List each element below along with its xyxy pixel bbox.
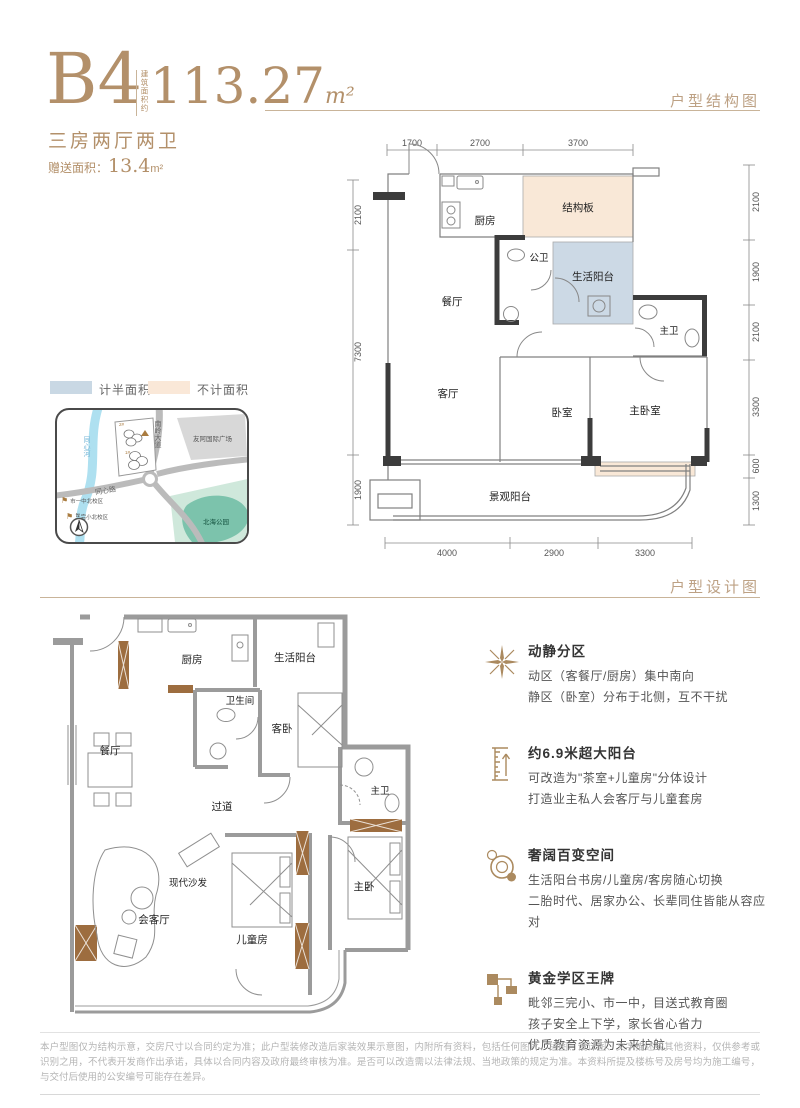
design-floorplan: 厨房 生活阳台 卫生间 客卧 餐厅 过道 主卫 现代沙发 会客厅 儿童房 主卧 <box>50 605 450 1025</box>
dim-left-0: 2100 <box>353 205 363 225</box>
dim-bottom-2: 3300 <box>635 548 655 558</box>
dim-top-1: 2700 <box>470 138 490 148</box>
dim-right-5: 1300 <box>751 491 761 511</box>
bonus-area: 赠送面积：13.4m² <box>48 155 163 177</box>
kids-door-arc <box>236 969 262 995</box>
droom-bath: 卫生间 <box>226 695 255 707</box>
public-bath-door-arc <box>531 270 551 290</box>
droom-kitchen: 厨房 <box>182 653 203 666</box>
room-label-view-balcony: 景观阳台 <box>489 490 531 503</box>
droom-master-bath: 主卫 <box>370 785 390 797</box>
floorplan-brochure-page: { "colors": {"accent":"#b3906a","beige_f… <box>0 0 800 1108</box>
map-road-nanling-label: 南岭大道 <box>152 420 162 448</box>
tv-cabinet <box>179 833 220 867</box>
room-label-kitchen: 厨房 <box>475 214 496 227</box>
map-plot-marker-2: 1# <box>125 450 130 455</box>
feature-text: 约6.9米超大阳台 可改造为"茶室+儿童房"分体设计 打造业主私人会客厅与儿童套… <box>528 742 708 810</box>
structure-plan-graphics: 1700 2700 3700 4000 2900 3300 2100 7300 … <box>345 128 765 560</box>
section-title-design: 户型设计图 <box>600 576 760 597</box>
bonus-value: 13.4 <box>108 155 150 177</box>
feature-line: 静区（卧室）分布于北侧，互不干扰 <box>528 687 728 708</box>
location-map: 同心河 南岭大道 同心路 友阿国际广场 北海公园 2# 1# ⚑市一中北校区 ⚑… <box>55 408 249 544</box>
feature-title: 约6.9米超大阳台 <box>528 742 708 762</box>
area-prefix-vertical: 建筑面积约 <box>136 70 150 116</box>
dim-bottom-1: 2900 <box>544 548 564 558</box>
feature-zoning: 动静分区 动区（客餐厅/厨房）集中南向 静区（卧室）分布于北侧，互不干扰 <box>482 640 767 708</box>
disclaimer-divider-top <box>40 1032 760 1033</box>
map-roundabout <box>144 473 157 486</box>
feature-line: 毗邻三完小、市一中，目送式教育圈 <box>528 993 728 1014</box>
master-bedroom-door-arc <box>640 357 664 381</box>
dim-left-1: 7300 <box>353 342 363 362</box>
droom-reception: 会客厅 <box>138 913 170 926</box>
bonus-label: 赠送面积： <box>48 161 108 175</box>
map-school-1-label: 市一中北校区 <box>70 499 103 505</box>
map-school-2: ⚑三完小北校区 <box>66 512 108 521</box>
feature-title: 动静分区 <box>528 640 728 660</box>
zone-life-balcony <box>553 242 633 324</box>
dim-right-1: 1900 <box>751 262 761 282</box>
room-label-life-balcony: 生活阳台 <box>572 270 614 283</box>
map-road-east <box>157 459 247 474</box>
entry-door-arc <box>409 144 439 174</box>
map-school-2-label: 三完小北校区 <box>75 515 108 521</box>
legend-label-half-area: 计半面积 <box>99 381 151 398</box>
bath-door-arc <box>236 717 258 739</box>
room-label-public-bath: 公卫 <box>529 253 549 264</box>
map-plot-marker-1: 2# <box>119 422 124 427</box>
room-label-bedroom: 卧室 <box>552 406 573 419</box>
feature-title: 奢阔百变空间 <box>528 844 767 864</box>
dim-bottom-0: 4000 <box>437 548 457 558</box>
guest-bed-door-arc <box>264 777 290 803</box>
dim-right-4: 600 <box>751 458 761 473</box>
flag-icon: ⚑ <box>66 512 73 521</box>
droom-kids-room: 儿童房 <box>236 933 268 946</box>
feature-flex-space: 奢阔百变空间 生活阳台书房/儿童房/客房随心切换 二胎时代、居家办公、长辈同住皆… <box>482 844 767 933</box>
room-label-slab: 结构板 <box>562 201 594 214</box>
bonus-unit: m² <box>150 163 163 175</box>
droom-guest-bed: 客卧 <box>272 722 293 735</box>
droom-sofa: 现代沙发 <box>169 877 208 889</box>
guest-bed <box>298 693 342 767</box>
starburst-icon <box>482 640 528 708</box>
feature-line: 二胎时代、居家办公、长辈同住皆能从容应对 <box>528 891 767 933</box>
layout-text: 三房两厅两卫 <box>48 126 180 153</box>
dim-right-0: 2100 <box>751 192 761 212</box>
master-bath-door-arc <box>340 785 360 805</box>
room-label-master-bath: 主卫 <box>659 325 679 337</box>
dim-top-2: 3700 <box>568 138 588 148</box>
section-divider-structure <box>265 110 760 111</box>
room-label-living: 客厅 <box>438 387 459 400</box>
master-bath-door-arc <box>635 328 654 347</box>
master-bed-door-arc <box>330 837 355 862</box>
feature-line: 可改造为"茶室+儿童房"分体设计 <box>528 768 708 789</box>
dining-table <box>88 753 132 787</box>
map-school-1: ⚑市一中北校区 <box>61 496 103 505</box>
legend-swatch-excluded-area <box>148 381 190 394</box>
structure-floorplan: 1700 2700 3700 4000 2900 3300 2100 7300 … <box>345 128 765 560</box>
section-divider-design <box>40 597 760 598</box>
disclaimer-text: 本户型图仅为结构示意，交房尺寸以合同约定为准；此户型装修改造后家装效果示意图，内… <box>40 1040 760 1086</box>
feature-text: 奢阔百变空间 生活阳台书房/儿童房/客房随心切换 二胎时代、居家办公、长辈同住皆… <box>528 844 767 933</box>
droom-dining: 餐厅 <box>100 744 121 757</box>
droom-corridor: 过道 <box>212 800 233 813</box>
design-outer-walls <box>53 617 408 1012</box>
feature-title: 黄金学区王牌 <box>528 967 728 987</box>
feature-balcony: 约6.9米超大阳台 可改造为"茶室+儿童房"分体设计 打造业主私人会客厅与儿童套… <box>482 742 767 810</box>
map-compass-n: N <box>76 513 80 519</box>
dim-right-2: 2100 <box>751 322 761 342</box>
map-river-label: 同心河 <box>81 436 91 457</box>
area-figure: 113.27m² <box>150 57 355 115</box>
map-mall-label: 友阿国际广场 <box>193 433 232 443</box>
droom-life-balcony: 生活阳台 <box>274 651 316 664</box>
features-list: 动静分区 动区（客餐厅/厨房）集中南向 静区（卧室）分布于北侧，互不干扰 约6.… <box>482 640 767 1090</box>
ruler-icon <box>482 742 528 810</box>
area-value: 113.27 <box>150 57 325 115</box>
feature-line: 生活阳台书房/儿童房/客房随心切换 <box>528 870 767 891</box>
circles-icon <box>482 844 528 933</box>
dim-top-0: 1700 <box>402 138 422 148</box>
zone-master-window-strip <box>595 462 695 476</box>
room-label-dining: 餐厅 <box>442 295 463 308</box>
feature-line: 打造业主私人会客厅与儿童套房 <box>528 789 708 810</box>
map-park-label: 北海公园 <box>203 516 229 526</box>
section-title-structure: 户型结构图 <box>600 90 760 111</box>
dim-left-2: 1900 <box>353 480 363 500</box>
area-unit: m² <box>325 84 355 109</box>
dim-right-3: 3300 <box>751 397 761 417</box>
flag-icon: ⚑ <box>61 496 68 505</box>
feature-text: 动静分区 动区（客餐厅/厨房）集中南向 静区（卧室）分布于北侧，互不干扰 <box>528 640 728 708</box>
bedroom-door-arc <box>517 332 542 357</box>
droom-master-bed: 主卧 <box>354 880 375 893</box>
feature-line: 动区（客餐厅/厨房）集中南向 <box>528 666 728 687</box>
room-label-master-bedroom: 主卧室 <box>629 404 661 417</box>
unit-name: B4 <box>46 44 142 114</box>
legend-swatch-half-area <box>50 381 92 394</box>
disclaimer-divider-bottom <box>40 1094 760 1095</box>
design-plan-graphics: 厨房 生活阳台 卫生间 客卧 餐厅 过道 主卫 现代沙发 会客厅 儿童房 主卧 <box>50 605 450 1025</box>
legend-label-excluded-area: 不计面积 <box>197 381 249 398</box>
